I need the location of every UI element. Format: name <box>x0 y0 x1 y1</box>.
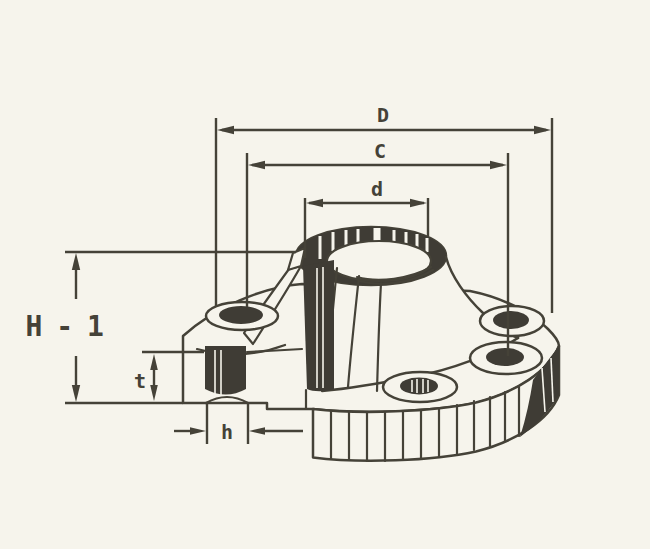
flange-drawing <box>183 227 559 461</box>
hub-cut-section <box>303 260 334 391</box>
front-bolt-hole <box>400 378 438 395</box>
dim-label-t: t <box>134 369 146 393</box>
left-bolt-hole <box>219 306 263 324</box>
flange-dimension-diagram: D C d H - 1 <box>0 0 650 549</box>
dim-label-d: d <box>371 177 383 201</box>
dim-label-C: C <box>374 139 386 163</box>
dim-label-h: h <box>221 420 233 444</box>
lower-right-bolt-hole <box>486 348 524 366</box>
upper-right-bolt-hole <box>493 311 529 329</box>
bolt-hole-section <box>205 346 246 395</box>
dim-label-D: D <box>377 103 389 127</box>
dim-label-H1: H - 1 <box>26 310 103 343</box>
